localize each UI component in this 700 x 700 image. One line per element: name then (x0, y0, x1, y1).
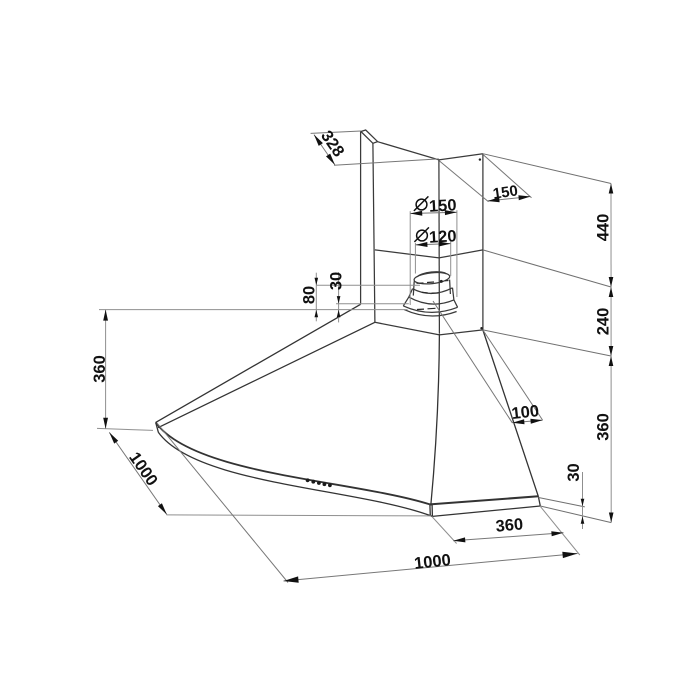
svg-text:240: 240 (595, 308, 613, 336)
svg-text:30: 30 (328, 272, 346, 290)
svg-text:360: 360 (595, 413, 613, 441)
svg-text:120: 120 (429, 227, 457, 246)
svg-text:100: 100 (511, 402, 540, 423)
svg-text:150: 150 (492, 182, 519, 202)
svg-text:80: 80 (301, 286, 319, 304)
svg-text:1000: 1000 (413, 551, 451, 573)
svg-text:150: 150 (429, 196, 457, 215)
svg-text:440: 440 (595, 214, 613, 242)
svg-text:360: 360 (91, 355, 109, 383)
svg-text:30: 30 (565, 463, 583, 481)
svg-text:360: 360 (495, 515, 524, 535)
